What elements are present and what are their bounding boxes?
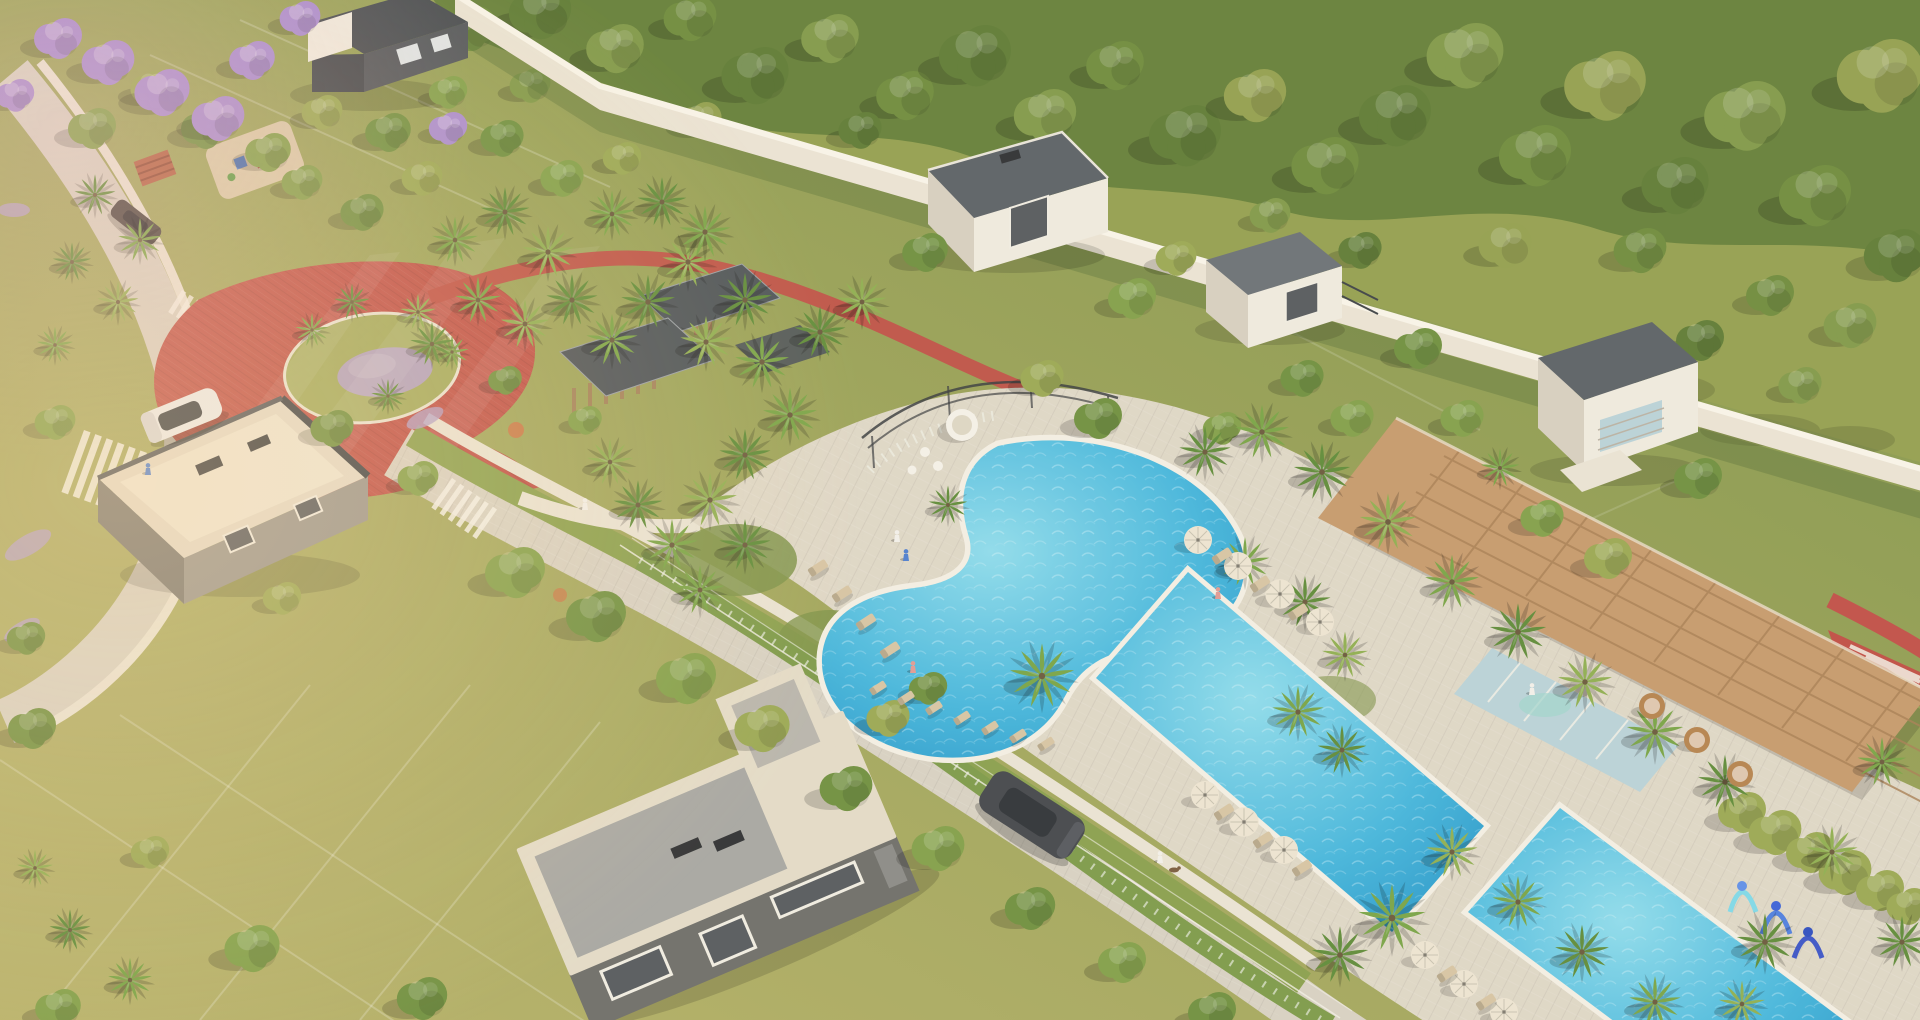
aerial-render-image [0,0,1920,1020]
scene-svg [0,0,1920,1020]
light-overlays [0,0,1920,1020]
